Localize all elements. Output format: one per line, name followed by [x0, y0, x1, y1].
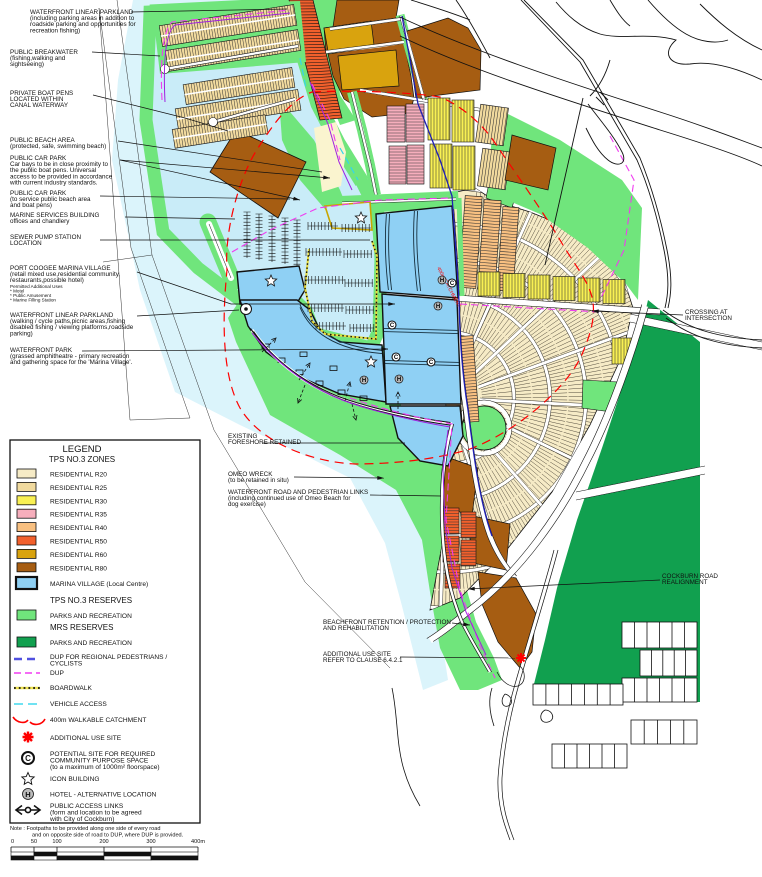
svg-text:C: C: [450, 281, 455, 287]
svg-text:RESIDENTIAL R25: RESIDENTIAL R25: [50, 485, 107, 492]
svg-text:TPS NO.3 ZONES: TPS NO.3 ZONES: [49, 455, 115, 464]
svg-text:RESIDENTIAL R60: RESIDENTIAL R60: [50, 552, 107, 559]
svg-text:RESIDENTIAL R50: RESIDENTIAL R50: [50, 539, 107, 546]
svg-text:C: C: [25, 754, 31, 763]
svg-text:H: H: [436, 304, 440, 310]
svg-text:ADDITIONAL USE SITE: ADDITIONAL USE SITE: [50, 735, 122, 742]
svg-text:and on opposite side of road t: and on opposite side of road to DUP, whe…: [32, 833, 184, 839]
svg-text:TPS NO.3 RESERVES: TPS NO.3 RESERVES: [50, 596, 132, 605]
svg-text:DUP: DUP: [50, 670, 65, 677]
svg-text:HOTEL - ALTERNATIVE LOCATION: HOTEL - ALTERNATIVE LOCATION: [50, 792, 157, 799]
svg-text:LEGEND: LEGEND: [62, 444, 101, 455]
svg-text:Note : Footpaths to be provide: Note : Footpaths to be provided along on…: [10, 826, 161, 832]
svg-text:H: H: [397, 377, 401, 383]
svg-text:RESIDENTIAL R20: RESIDENTIAL R20: [50, 472, 107, 479]
svg-text:PARKS AND RECREATION: PARKS AND RECREATION: [50, 613, 132, 620]
svg-text:RESIDENTIAL R40: RESIDENTIAL R40: [50, 525, 107, 532]
svg-text:VEHICLE ACCESS: VEHICLE ACCESS: [50, 701, 107, 708]
svg-text:PARKS AND RECREATION: PARKS AND RECREATION: [50, 640, 132, 647]
svg-text:RESIDENTIAL R30: RESIDENTIAL R30: [50, 498, 107, 505]
svg-text:with City of Cockburn): with City of Cockburn): [49, 816, 115, 823]
svg-text:(to a maximum of 1000m² floors: (to a maximum of 1000m² floorspace): [50, 764, 160, 771]
svg-text:CYCLISTS: CYCLISTS: [50, 661, 83, 668]
svg-text:RESIDENTIAL R80: RESIDENTIAL R80: [50, 565, 107, 572]
svg-text:C: C: [429, 360, 434, 366]
svg-text:400m WALKABLE CATCHMENT: 400m WALKABLE CATCHMENT: [50, 717, 146, 724]
svg-text:ICON BUILDING: ICON BUILDING: [50, 776, 99, 783]
svg-text:CROSSING ATINTERSECTION: CROSSING ATINTERSECTION: [685, 309, 732, 322]
svg-text:MRS RESERVES: MRS RESERVES: [50, 623, 113, 632]
svg-text:H: H: [362, 378, 366, 384]
svg-text:H: H: [25, 790, 30, 799]
svg-text:MARINA VILLAGE (Local Centre): MARINA VILLAGE (Local Centre): [50, 581, 148, 588]
svg-text:BOARDWALK: BOARDWALK: [50, 685, 92, 692]
svg-text:RESIDENTIAL R35: RESIDENTIAL R35: [50, 512, 107, 519]
svg-text:H: H: [440, 278, 444, 284]
svg-text:C: C: [394, 355, 399, 361]
svg-text:C: C: [390, 323, 395, 329]
